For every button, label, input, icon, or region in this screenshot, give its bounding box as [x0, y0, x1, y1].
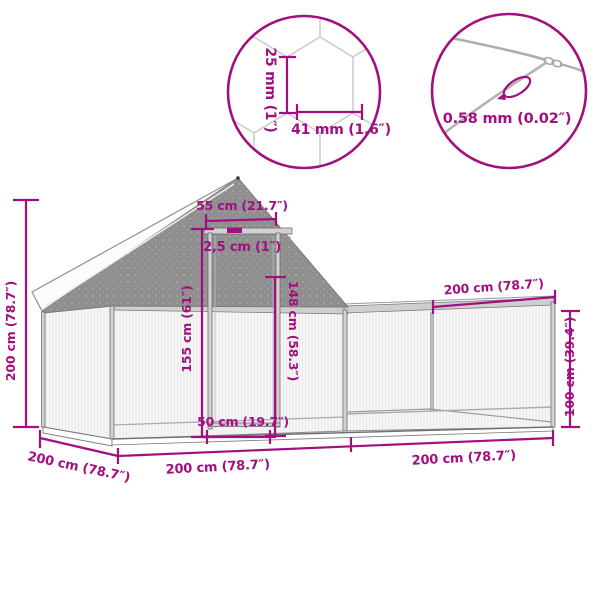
frame-tube-highlight	[227, 228, 242, 234]
divider-post	[343, 310, 347, 431]
gable-mesh-panel	[42, 178, 348, 313]
mesh-cell-height-label: 25 mm (1″)	[262, 47, 278, 132]
diagram-canvas: 200 cm (78.7″) 55 cm (21.7″) 2,5 cm (1″)…	[0, 0, 600, 600]
frame-tube-label: 2,5 cm (1″)	[203, 240, 281, 255]
run-front-mesh-panel	[345, 302, 553, 431]
wire-thickness-label: 0.58 mm (0.02″)	[443, 111, 572, 127]
mesh-detail-circle: 25 mm (1″) 41 mm (1.6″)	[228, 16, 391, 168]
front-right-post	[551, 302, 555, 427]
front-left-post	[110, 306, 114, 439]
run-back-post	[431, 313, 434, 410]
run-height-label: 100 cm (39.4″)	[562, 317, 577, 417]
hex-mesh-texture	[229, 17, 379, 167]
door-frame-height-label: 155 cm (61″)	[179, 285, 194, 372]
door-height-label: 148 cm (58.3″)	[286, 281, 301, 381]
coop-section-length-label: 200 cm (78.7″)	[165, 457, 270, 477]
left-side-mesh-panel	[43, 306, 112, 439]
dimension-coop-height: 200 cm (78.7″)	[3, 200, 39, 427]
roof-apex-fitting	[236, 176, 240, 180]
dimension-run-height: 100 cm (39.4″)	[561, 311, 580, 427]
door-left-tube	[208, 233, 212, 429]
door-right-tube	[276, 233, 280, 427]
back-left-post	[42, 312, 46, 427]
coop-height-label: 200 cm (78.7″)	[3, 281, 18, 381]
run-top-length-label: 200 cm (78.7″)	[443, 276, 544, 298]
product-dimension-diagram: 200 cm (78.7″) 55 cm (21.7″) 2,5 cm (1″)…	[0, 0, 600, 600]
roof-ridge-width-label: 55 cm (21.7″)	[196, 198, 288, 213]
run-section-length-label: 200 cm (78.7″)	[411, 448, 516, 468]
wire-detail-circle: 0.58 mm (0.02″)	[428, 14, 592, 168]
mesh-cell-width-label: 41 mm (1.6″)	[291, 122, 391, 138]
door-width-label: 50 cm (19.7″)	[197, 414, 289, 429]
